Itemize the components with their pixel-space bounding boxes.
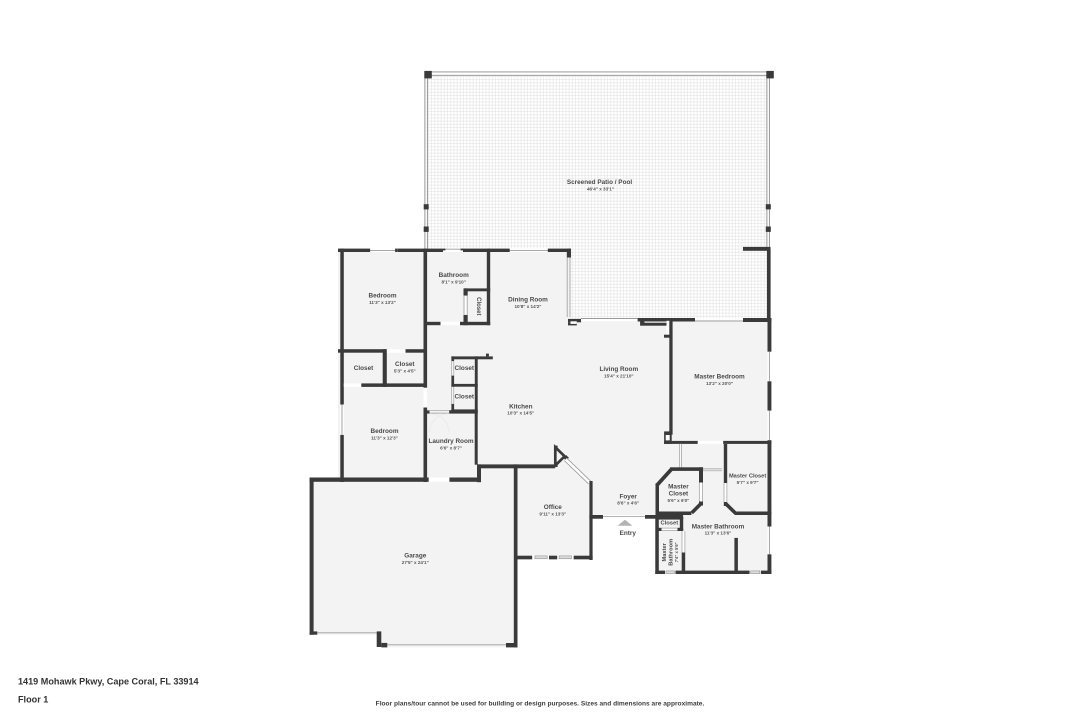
svg-text:Floor 1: Floor 1 — [18, 694, 48, 704]
svg-text:Master Closet: Master Closet — [729, 474, 766, 480]
svg-text:Screened Patio / Pool: Screened Patio / Pool — [567, 179, 633, 186]
svg-text:11'3" x 13'6": 11'3" x 13'6" — [705, 531, 732, 536]
svg-text:Closet: Closet — [455, 393, 475, 400]
svg-text:10'8" x 14'2": 10'8" x 14'2" — [515, 304, 542, 309]
svg-text:Master: Master — [662, 542, 668, 561]
svg-text:Living Room: Living Room — [599, 366, 638, 373]
svg-text:9'11" x 13'3": 9'11" x 13'3" — [539, 512, 566, 517]
svg-text:Closet: Closet — [455, 365, 475, 372]
svg-text:Master: Master — [668, 484, 689, 491]
svg-text:Master Bathroom: Master Bathroom — [692, 523, 745, 530]
svg-text:Laundry Room: Laundry Room — [428, 438, 473, 445]
svg-text:6'6" x 8'7": 6'6" x 8'7" — [440, 446, 462, 451]
svg-text:46'4" x 33'1": 46'4" x 33'1" — [587, 186, 614, 191]
svg-text:Closet: Closet — [395, 361, 415, 368]
svg-text:15'4" x 21'10": 15'4" x 21'10" — [604, 374, 634, 379]
svg-text:5'7" x 9'7": 5'7" x 9'7" — [737, 480, 759, 485]
svg-text:10'3" x 14'5": 10'3" x 14'5" — [507, 411, 534, 416]
svg-text:Bedroom: Bedroom — [368, 293, 396, 300]
svg-text:Master Bedroom: Master Bedroom — [694, 373, 745, 380]
svg-text:Closet: Closet — [669, 491, 689, 498]
svg-text:11'3" x 12'3": 11'3" x 12'3" — [371, 435, 398, 440]
svg-text:Closet: Closet — [660, 521, 678, 527]
svg-text:1419 Mohawk Pkwy, Cape Coral,: 1419 Mohawk Pkwy, Cape Coral, FL 33914 — [18, 677, 200, 687]
svg-text:Closet: Closet — [354, 365, 374, 372]
svg-text:Bathroom: Bathroom — [439, 272, 469, 279]
svg-text:Floor plans/tour cannot be use: Floor plans/tour cannot be used for buil… — [376, 700, 705, 707]
svg-text:11'3" x 13'2": 11'3" x 13'2" — [369, 300, 396, 305]
svg-text:Foyer: Foyer — [619, 493, 637, 500]
svg-text:5'3" x 4'5": 5'3" x 4'5" — [394, 369, 416, 374]
svg-text:Dining Room: Dining Room — [508, 296, 548, 303]
svg-text:5'6" x 6'0": 5'6" x 6'0" — [667, 498, 689, 503]
svg-text:Office: Office — [544, 504, 563, 511]
svg-text:Bedroom: Bedroom — [370, 428, 398, 435]
svg-text:Closet: Closet — [475, 297, 481, 315]
svg-text:13'2" x 20'0": 13'2" x 20'0" — [706, 381, 733, 386]
svg-text:8'1" x 9'10": 8'1" x 9'10" — [441, 280, 465, 285]
svg-text:8'6" x 4'6": 8'6" x 4'6" — [617, 500, 639, 505]
svg-text:7'4" x 5'6": 7'4" x 5'6" — [674, 542, 679, 562]
svg-text:Entry: Entry — [620, 530, 637, 537]
svg-text:27'5" x 24'1": 27'5" x 24'1" — [402, 560, 429, 565]
svg-text:Garage: Garage — [404, 552, 426, 559]
